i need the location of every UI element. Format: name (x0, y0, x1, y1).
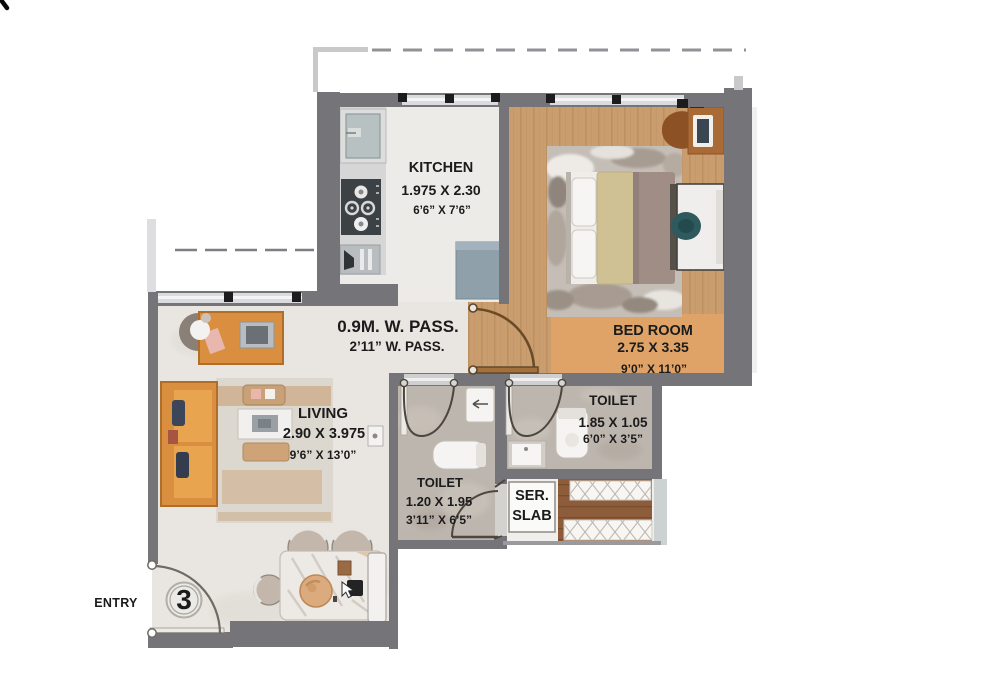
svg-text:0.9M. W. PASS.: 0.9M. W. PASS. (337, 317, 459, 336)
svg-text:KITCHEN: KITCHEN (409, 160, 473, 176)
svg-text:SLAB: SLAB (512, 508, 551, 524)
svg-text:1.20 X 1.95: 1.20 X 1.95 (406, 494, 473, 509)
svg-text:TOILET: TOILET (589, 393, 638, 408)
svg-text:TOILET: TOILET (417, 475, 463, 490)
svg-text:2.90 X 3.975: 2.90 X 3.975 (283, 426, 365, 442)
svg-text:2.75 X 3.35: 2.75 X 3.35 (617, 339, 689, 355)
svg-text:6’0” X 3’5”: 6’0” X 3’5” (583, 432, 643, 446)
svg-text:6’6” X 7’6”: 6’6” X 7’6” (413, 205, 471, 217)
svg-text:LIVING: LIVING (298, 405, 348, 422)
svg-text:BED ROOM: BED ROOM (613, 323, 693, 339)
svg-text:3: 3 (176, 584, 192, 615)
svg-text:1.975 X 2.30: 1.975 X 2.30 (401, 182, 481, 198)
svg-text:2’11” W. PASS.: 2’11” W. PASS. (349, 339, 444, 354)
svg-text:1.85 X 1.05: 1.85 X 1.05 (578, 415, 648, 430)
svg-text:SER.: SER. (515, 488, 549, 504)
svg-text:ENTRY: ENTRY (94, 596, 138, 610)
svg-text:9’6” X 13’0”: 9’6” X 13’0” (290, 448, 357, 462)
svg-text:3’11” X 6’5”: 3’11” X 6’5” (406, 513, 472, 527)
svg-text:9’0” X 11’0”: 9’0” X 11’0” (621, 362, 687, 376)
